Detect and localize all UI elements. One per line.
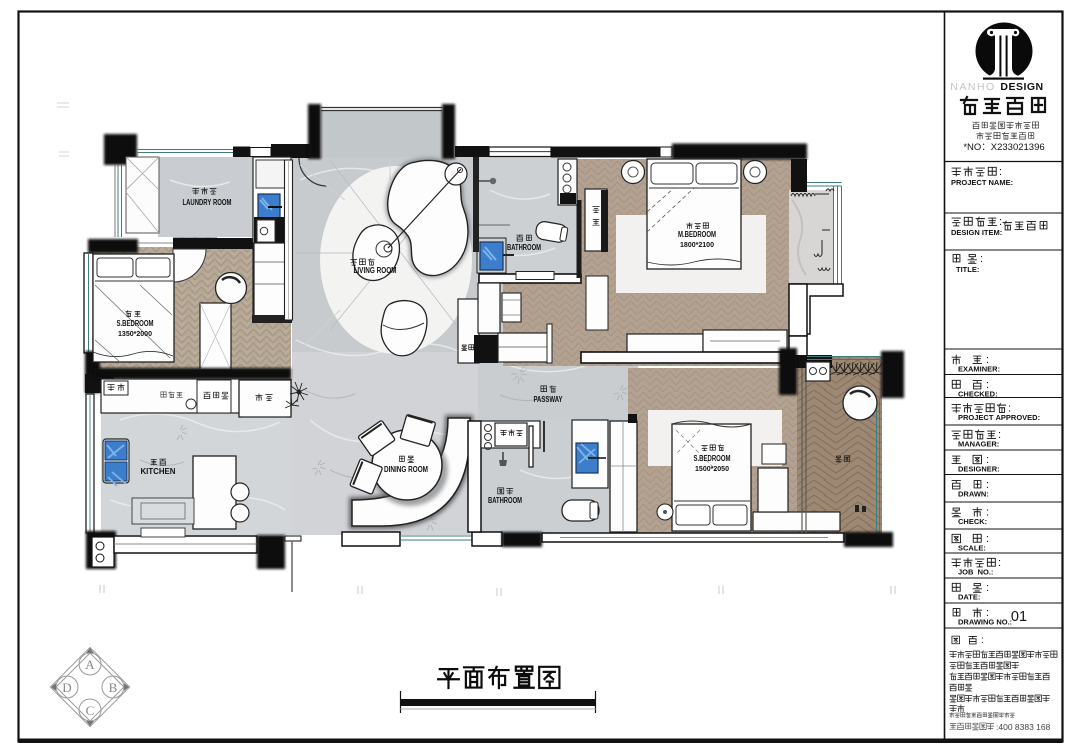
svg-text::: : xyxy=(980,253,983,265)
svg-text:DRAWN:: DRAWN: xyxy=(958,490,989,499)
svg-text:JOB NO.:: JOB NO.: xyxy=(958,568,993,577)
svg-text:PROJECT NAME:: PROJECT NAME: xyxy=(951,178,1013,187)
svg-text:01: 01 xyxy=(1011,609,1027,625)
svg-text:1350*2000: 1350*2000 xyxy=(118,329,152,338)
svg-text:DRAWING NO.:: DRAWING NO.: xyxy=(958,618,1012,627)
svg-text:EXAMINER:: EXAMINER: xyxy=(958,365,1000,374)
svg-text::: : xyxy=(999,216,1002,228)
svg-text:D: D xyxy=(62,680,71,695)
svg-text:CHECK:: CHECK: xyxy=(958,517,987,526)
svg-text:A: A xyxy=(85,657,95,672)
svg-text:S.BEDROOM: S.BEDROOM xyxy=(117,319,154,328)
svg-text::: : xyxy=(986,582,989,594)
svg-text:S.BEDROOM: S.BEDROOM xyxy=(694,454,731,463)
svg-text:1500*2050: 1500*2050 xyxy=(695,464,729,473)
svg-text:M.BEDROOM: M.BEDROOM xyxy=(678,230,716,239)
svg-text:KITCHEN: KITCHEN xyxy=(141,467,176,476)
svg-text:MANAGER:: MANAGER: xyxy=(958,440,999,449)
svg-text:NANHO: NANHO xyxy=(950,81,995,93)
svg-text::: : xyxy=(999,166,1002,178)
svg-text:DATE:: DATE: xyxy=(958,593,980,602)
svg-text:1800*2100: 1800*2100 xyxy=(680,240,714,249)
svg-text:DINING ROOM: DINING ROOM xyxy=(384,465,428,474)
svg-text:LIVING ROOM: LIVING ROOM xyxy=(354,266,397,275)
svg-text:BATHROOM: BATHROOM xyxy=(507,243,541,252)
svg-text:LAUNDRY ROOM: LAUNDRY ROOM xyxy=(183,198,232,207)
svg-text::: : xyxy=(986,533,989,545)
svg-text:*NO：X233021396: *NO：X233021396 xyxy=(963,142,1044,153)
svg-text:PASSWAY: PASSWAY xyxy=(534,395,563,404)
svg-text:PROJECT APPROVED:: PROJECT APPROVED: xyxy=(958,413,1040,422)
svg-text:DESIGNER:: DESIGNER: xyxy=(958,465,1000,474)
svg-text::400 8383 168: :400 8383 168 xyxy=(996,722,1051,732)
svg-text:DESIGN ITEM:: DESIGN ITEM: xyxy=(951,228,1002,237)
svg-text:BATHROOM: BATHROOM xyxy=(488,496,522,505)
svg-text::: : xyxy=(998,557,1001,569)
svg-text:C: C xyxy=(86,703,95,718)
svg-text:B: B xyxy=(109,680,118,695)
svg-text:SCALE:: SCALE: xyxy=(958,544,986,553)
svg-text:TITLE:: TITLE: xyxy=(956,265,979,274)
svg-text:DESIGN: DESIGN xyxy=(1000,81,1043,93)
svg-text::: : xyxy=(981,635,984,646)
